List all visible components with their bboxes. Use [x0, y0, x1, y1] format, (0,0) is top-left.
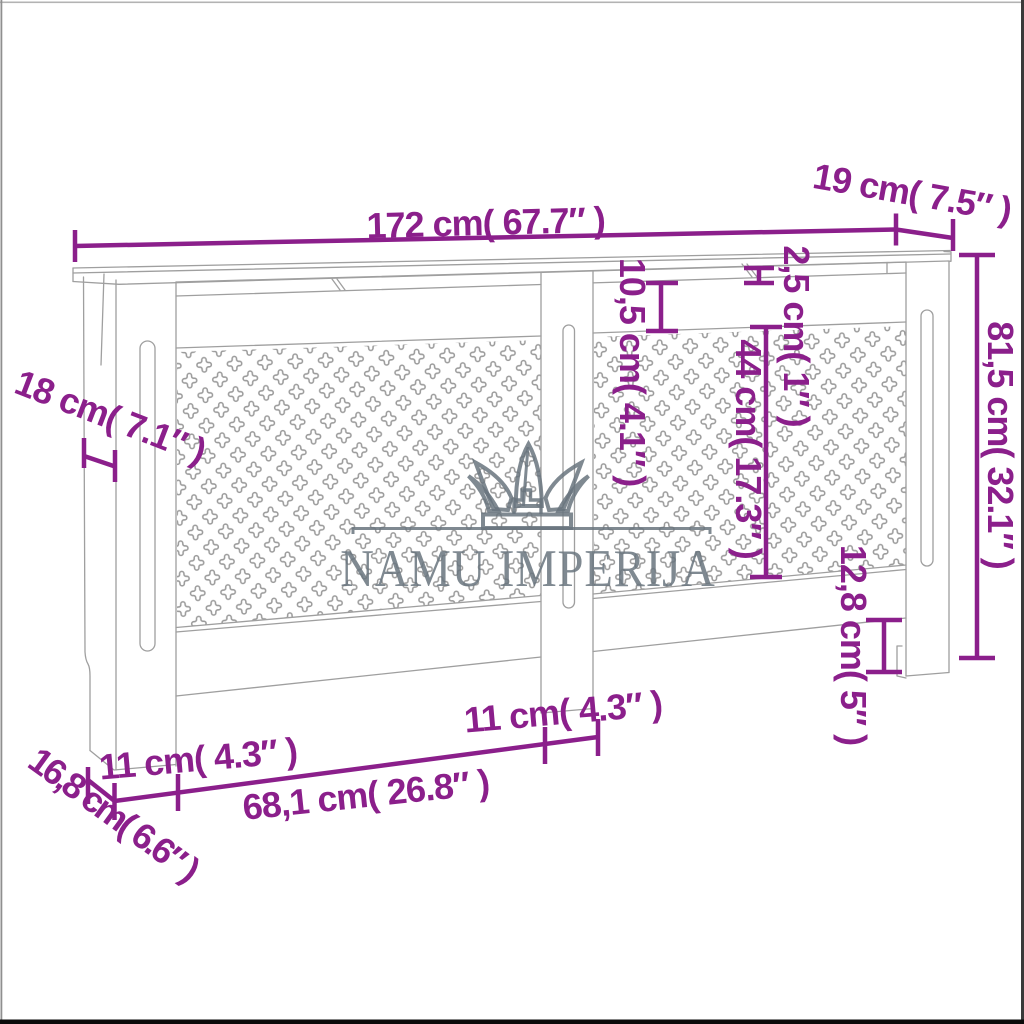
svg-text:172 cm( 67.7″ ): 172 cm( 67.7″ ) — [366, 199, 605, 246]
svg-text:81,5 cm( 32.1″ ): 81,5 cm( 32.1″ ) — [980, 321, 1021, 568]
svg-text:2,5 cm( 1″ ): 2,5 cm( 1″ ) — [776, 245, 817, 426]
svg-text:NAMU IMPERIJA: NAMU IMPERIJA — [340, 539, 715, 597]
svg-text:10,5 cm( 4.1″ ): 10,5 cm( 4.1″ ) — [612, 258, 653, 486]
svg-text:12,8 cm( 5″ ): 12,8 cm( 5″ ) — [833, 545, 874, 745]
svg-text:44 cm( 17.3″ ): 44 cm( 17.3″ ) — [728, 339, 769, 558]
